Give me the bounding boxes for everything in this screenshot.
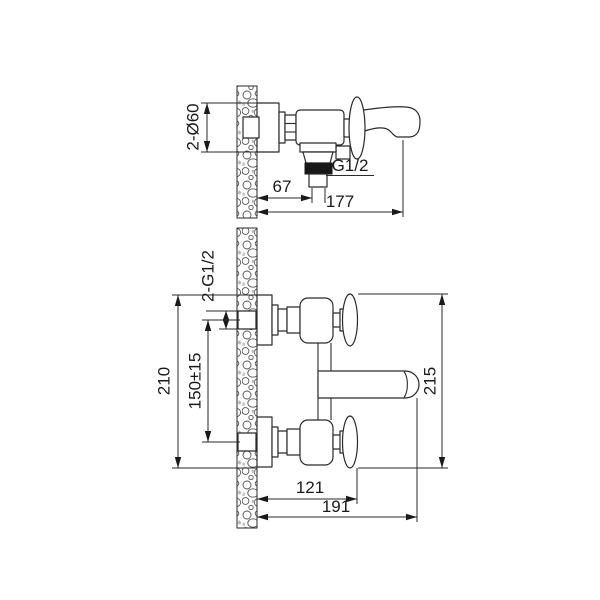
dim-wall-to-spout-tip: 191 [257, 497, 417, 520]
label-outlet-thread: G1/2 [326, 156, 374, 176]
dim-text-overall-height: 210 [154, 367, 173, 395]
connection-nut [279, 112, 296, 143]
wall-connector-bottom [238, 433, 256, 451]
dim-text-wall-to-outlet: 67 [273, 177, 292, 196]
technical-drawing: 2-Ø60 67 177 G1/2 [0, 0, 600, 600]
outlet-thread [305, 163, 332, 174]
dim-wall-to-outlet: 67 [257, 177, 312, 201]
handle [349, 97, 365, 159]
escutcheon-bottom [257, 417, 272, 467]
dim-text-escutcheon-diameter: 2-Ø60 [183, 103, 202, 150]
dim-text-connection-spacing: 150±15 [185, 353, 204, 410]
wall-connector [243, 117, 259, 138]
dim-overall-height: 210 [154, 295, 181, 468]
dim-text-body-span: 215 [420, 367, 439, 395]
handle-bottom [333, 416, 358, 468]
dim-text-connection-thread: 2-G1/2 [198, 250, 217, 302]
outlet-tube [309, 174, 327, 187]
dim-connection-spacing: 150±15 [185, 320, 240, 442]
escutcheon [257, 103, 279, 152]
wall-connector-top [238, 311, 256, 329]
technical-drawing-page: 2-Ø60 67 177 G1/2 [0, 0, 600, 600]
wall-section-plan [237, 228, 257, 528]
escutcheon-top [257, 295, 272, 345]
valve-body-top [300, 298, 333, 343]
plan-view: 2-G1/2 150±15 210 215 [154, 228, 448, 528]
handle-top [333, 294, 358, 346]
spout-plan [318, 371, 419, 398]
label-text-outlet-thread: G1/2 [332, 156, 369, 175]
valve-body-bottom [300, 420, 333, 465]
dim-text-wall-to-spout-tip: 191 [322, 497, 350, 516]
side-view: 2-Ø60 67 177 G1/2 [183, 86, 420, 218]
dim-text-wall-to-spout-end: 177 [326, 192, 354, 211]
mixer-body [296, 110, 344, 145]
dim-connection-thread: 2-G1/2 [198, 250, 240, 329]
dim-text-wall-to-handles: 121 [296, 478, 324, 497]
